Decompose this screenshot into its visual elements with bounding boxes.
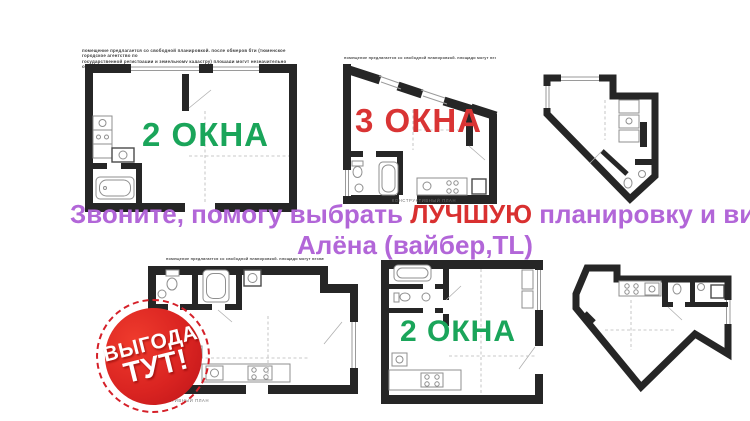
floor-plan-6-drawing: [565, 260, 735, 396]
headline: Звоните, помогу выбрать ЛУЧШУЮ планировк…: [70, 199, 750, 229]
sink-icon: [158, 290, 166, 298]
sink-icon: [698, 284, 705, 291]
kitchen-counter-icon: [389, 353, 461, 390]
sink-icon: [639, 171, 646, 178]
label-plan1-windows: 2 ОКНА: [142, 118, 269, 151]
kitchen-counter-icon: [619, 281, 661, 296]
toilet-icon: [673, 284, 681, 294]
kitchen-counter-icon: [93, 116, 112, 158]
interior-wall: [640, 122, 647, 147]
kitchen-counter-icon: [619, 100, 639, 142]
kitchen-counter-icon: [417, 178, 486, 195]
toilet-icon: [394, 293, 410, 302]
disclaimer-plan1-line1: помещение предлагается со свободной план…: [82, 48, 300, 59]
promo-badge: ВЫГОДА ТУТ!: [96, 299, 210, 413]
floor-plan-3-drawing: [543, 70, 663, 204]
bathtub-icon: [96, 177, 134, 199]
headline-part2: планировку и вид!: [532, 199, 750, 229]
washing-machine-icon: [244, 270, 261, 286]
toilet-icon: [624, 178, 632, 188]
wardrobe-icon: [522, 270, 533, 308]
floor-plan-3: [543, 70, 663, 204]
door-swing: [218, 310, 342, 344]
headline-line2: Алёна (вайбер,TL): [70, 230, 750, 260]
kitchen-counter-icon: [202, 364, 290, 382]
washing-machine-icon: [112, 148, 134, 162]
sink-icon: [422, 293, 430, 301]
door-swing: [469, 146, 485, 160]
headline-highlight: ЛУЧШУЮ: [410, 199, 532, 229]
toilet-icon: [166, 270, 179, 290]
headline-part1: Звоните, помогу выбрать: [70, 199, 410, 229]
bathtub-icon: [203, 270, 229, 302]
label-plan2-windows: 3 ОКНА: [355, 104, 482, 137]
bathtub-icon: [379, 162, 398, 195]
sink-icon: [355, 184, 363, 192]
bathtub-icon: [394, 265, 431, 281]
toilet-icon: [352, 161, 363, 178]
washing-machine-icon: [711, 285, 724, 298]
bathroom-wall-2: [635, 159, 655, 165]
ad-image: помещение предлагается со свободной план…: [0, 0, 750, 421]
door-swing: [189, 90, 211, 108]
label-plan5-windows: 2 ОКНА: [400, 317, 516, 347]
floor-plan-6: [565, 260, 735, 396]
